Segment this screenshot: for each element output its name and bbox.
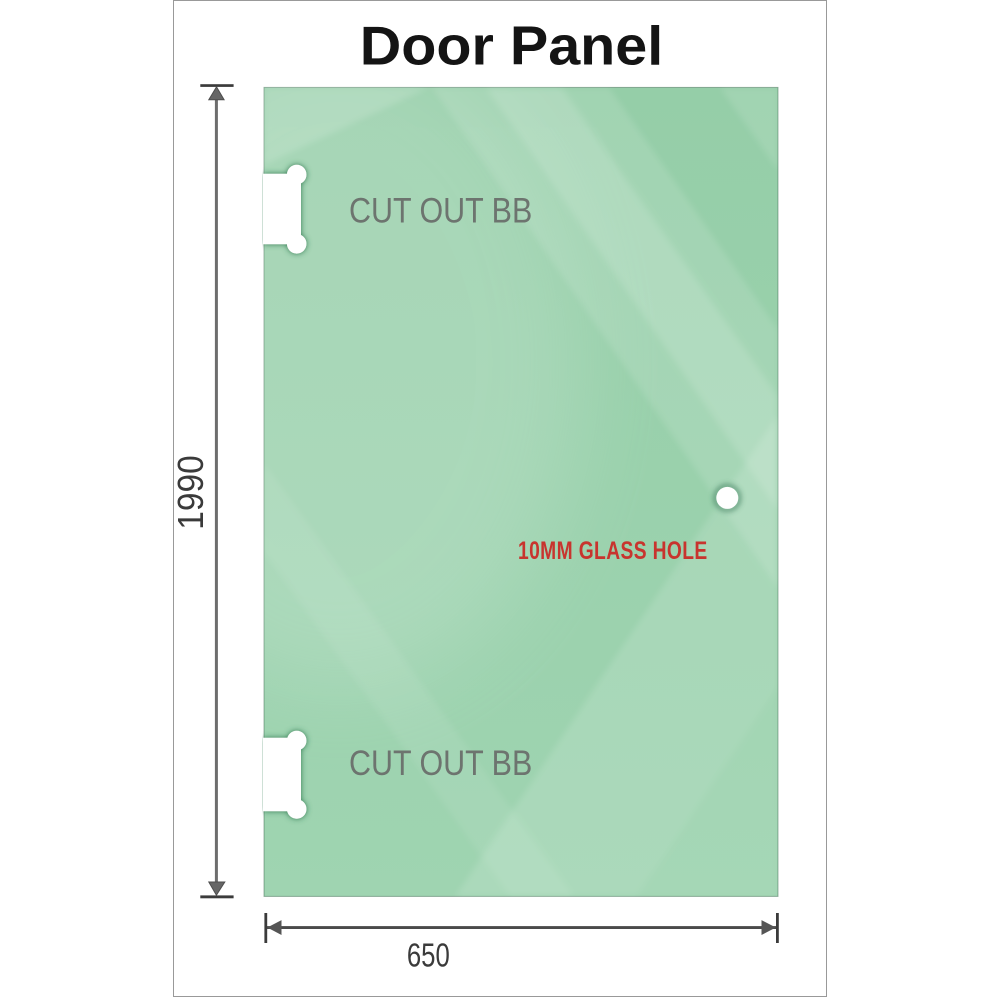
svg-text:Door Panel: Door Panel (360, 15, 663, 77)
svg-text:CUT OUT BB: CUT OUT BB (349, 190, 532, 229)
svg-text:10MM GLASS HOLE: 10MM GLASS HOLE (518, 536, 708, 564)
svg-text:CUT OUT BB: CUT OUT BB (349, 743, 532, 782)
svg-text:650: 650 (407, 938, 450, 975)
svg-text:1990: 1990 (172, 455, 211, 529)
